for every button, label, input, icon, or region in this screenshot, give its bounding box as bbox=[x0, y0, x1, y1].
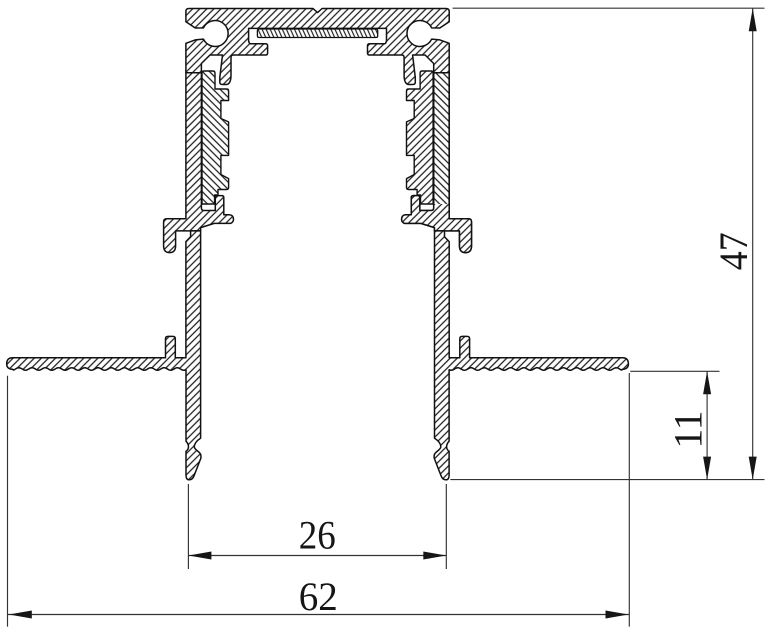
svg-text:47: 47 bbox=[712, 232, 756, 270]
svg-text:62: 62 bbox=[299, 575, 338, 619]
svg-text:11: 11 bbox=[667, 411, 711, 449]
svg-text:26: 26 bbox=[299, 514, 336, 558]
